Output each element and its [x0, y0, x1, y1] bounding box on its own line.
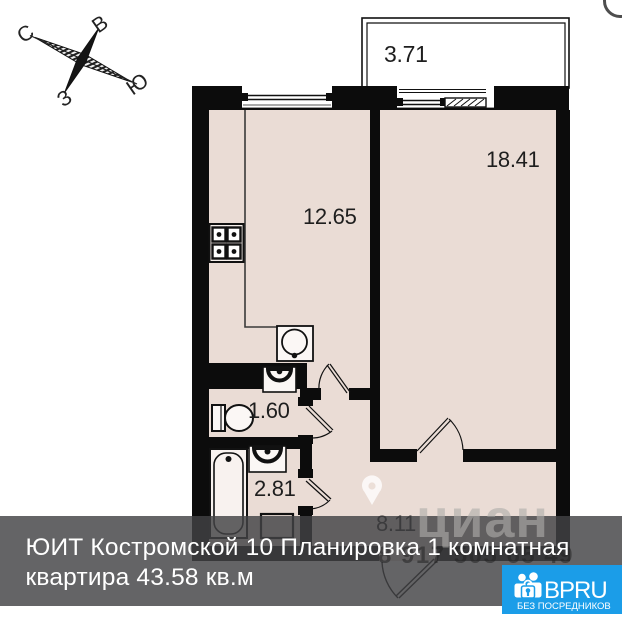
svg-text:С: С	[13, 20, 39, 48]
svg-text:3.71: 3.71	[384, 41, 428, 67]
svg-text:В: В	[88, 11, 113, 38]
svg-text:2.81: 2.81	[254, 476, 296, 501]
svg-text:З: З	[53, 86, 77, 112]
svg-text:ЮИТ Костромской 10 Планировка: ЮИТ Костромской 10 Планировка 1 комнатна…	[26, 534, 570, 561]
svg-text:1.60: 1.60	[248, 398, 290, 423]
svg-text:BPRU: BPRU	[544, 577, 607, 604]
svg-text:18.41: 18.41	[486, 147, 540, 172]
svg-text:Ю: Ю	[122, 69, 153, 100]
svg-text:12.65: 12.65	[303, 204, 357, 229]
svg-text:БЕЗ ПОСРЕДНИКОВ: БЕЗ ПОСРЕДНИКОВ	[517, 601, 611, 612]
svg-text:квартира 43.58 кв.м: квартира 43.58 кв.м	[26, 564, 254, 591]
